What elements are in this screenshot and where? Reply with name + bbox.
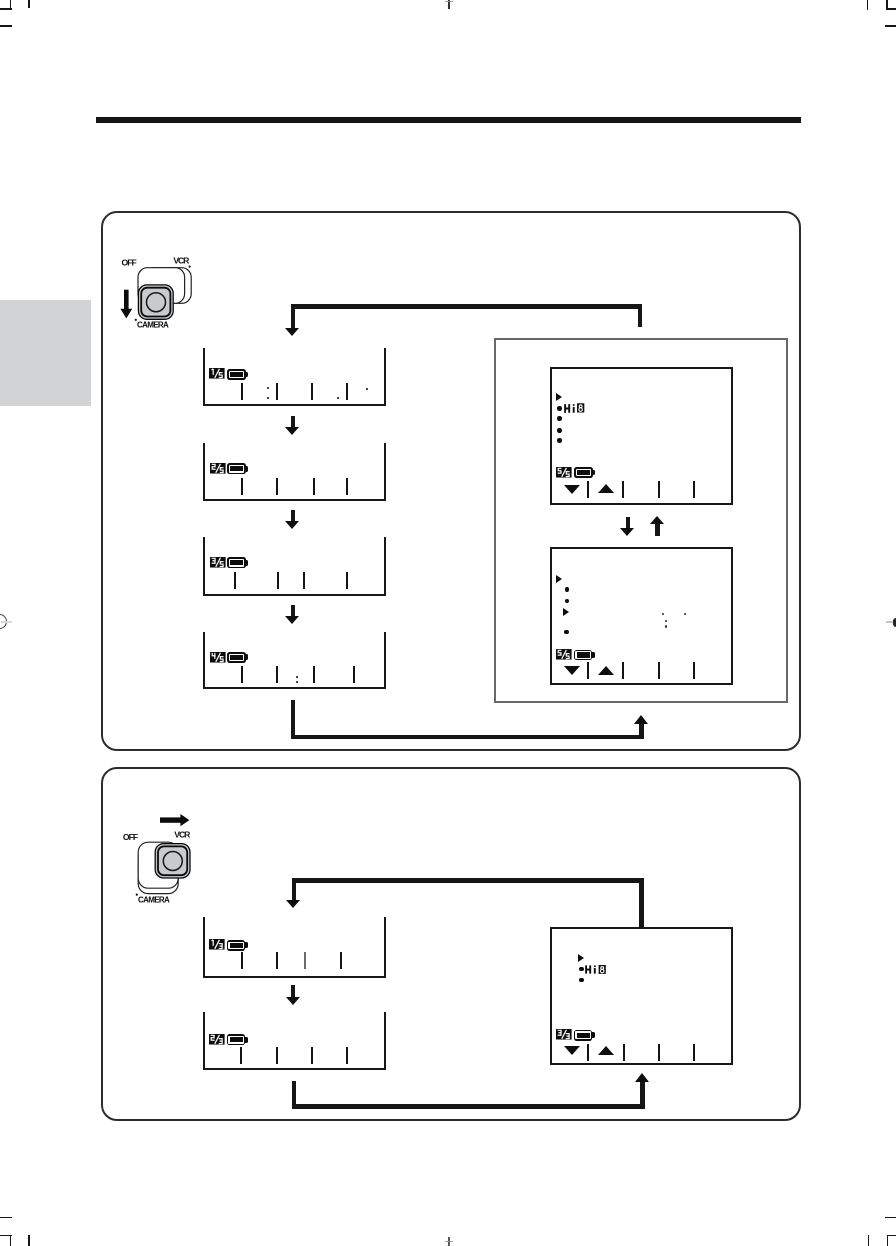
svg-text:VCR: VCR bbox=[173, 256, 190, 266]
svg-text:OFF: OFF bbox=[122, 257, 137, 267]
svg-text:CAMERA: CAMERA bbox=[138, 896, 170, 905]
svg-text:OFF: OFF bbox=[123, 832, 138, 842]
svg-text:VCR: VCR bbox=[174, 830, 191, 840]
svg-text:CAMERA: CAMERA bbox=[137, 321, 169, 330]
